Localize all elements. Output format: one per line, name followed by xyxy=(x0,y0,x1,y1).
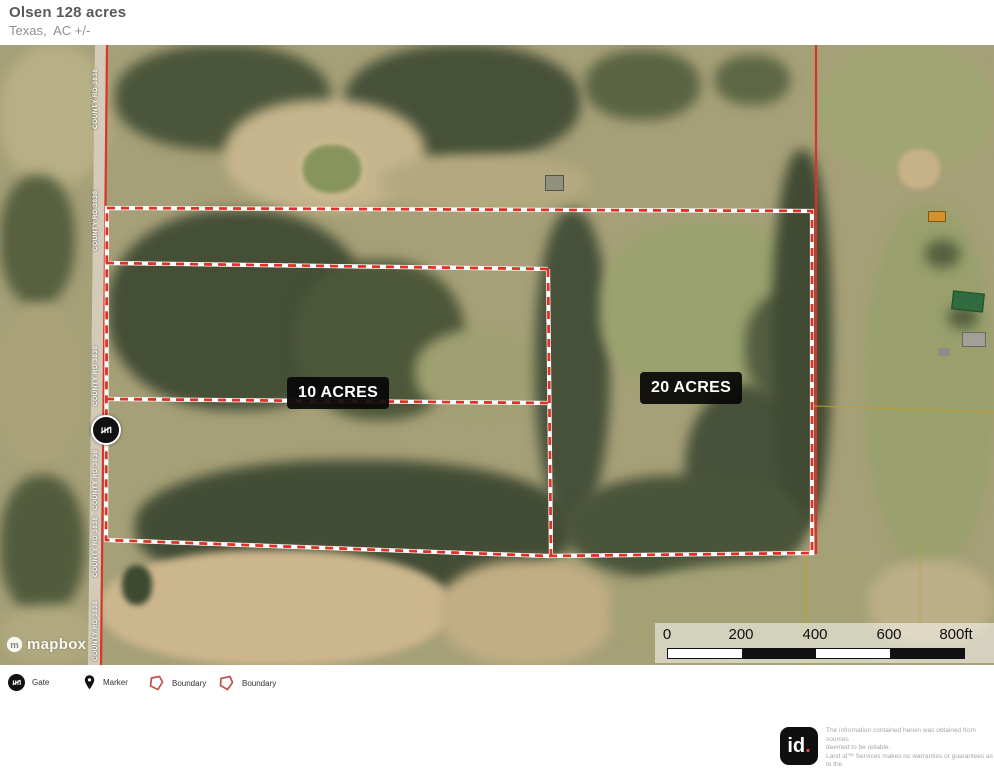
gate-icon xyxy=(99,423,113,437)
legend-label: Boundary xyxy=(242,679,276,688)
page-subtitle: Texas, AC +/- xyxy=(9,23,126,38)
road-label: COUNTY RD 3838 xyxy=(92,592,106,665)
gate-marker[interactable] xyxy=(91,415,121,445)
gate-icon xyxy=(8,674,25,691)
map-canvas[interactable]: COUNTY RD 3838 COUNTY RD 3838 COUNTY RD … xyxy=(0,45,994,665)
disclaimer: id. The information contained herein was… xyxy=(780,727,994,768)
road-label: COUNTY RD 3838 xyxy=(92,53,106,145)
scale-tick: 800ft xyxy=(939,626,972,643)
svg-text:m: m xyxy=(10,640,19,651)
legend-item-marker: Marker xyxy=(83,674,128,691)
boundary-icon xyxy=(147,674,165,692)
legend-item-boundary: Boundary xyxy=(147,674,206,692)
road-label: COUNTY RD 3838 xyxy=(92,330,106,422)
disclaimer-line: The information contained herein was obt… xyxy=(826,727,994,744)
scale-tick: 200 xyxy=(728,626,753,643)
road-label: COUNTY RD 3838 xyxy=(92,175,106,267)
legend-label: Boundary xyxy=(172,679,206,688)
mapbox-wordmark: mapbox xyxy=(27,636,86,653)
page: Olsen 128 acres Texas, AC +/- xyxy=(0,0,994,768)
boundary-overlay xyxy=(0,45,994,665)
legend-label: Marker xyxy=(103,678,128,687)
marker-icon xyxy=(83,674,96,691)
scale-bar: 0 200 400 600 800ft xyxy=(655,623,994,663)
land-id-logo-text: id xyxy=(787,735,805,758)
legend-item-boundary: Boundary xyxy=(217,674,276,692)
header: Olsen 128 acres Texas, AC +/- xyxy=(9,4,126,38)
road-label: COUNTY RD 3838 xyxy=(92,507,106,587)
legend-label: Gate xyxy=(32,678,49,687)
scale-bar-segments xyxy=(667,648,965,659)
land-id-logo: id. xyxy=(780,727,818,765)
disclaimer-line: Land id™ Services makes no warranties or… xyxy=(826,753,994,768)
disclaimer-line: deemed to be reliable. xyxy=(826,744,994,753)
mapbox-logo[interactable]: m mapbox xyxy=(6,636,86,653)
map-legend: Gate Marker Boundary Boundary xyxy=(0,665,994,710)
scale-tick: 400 xyxy=(802,626,827,643)
scale-tick: 600 xyxy=(876,626,901,643)
scale-tick: 0 xyxy=(663,626,671,643)
page-title: Olsen 128 acres xyxy=(9,4,126,21)
disclaimer-text: The information contained herein was obt… xyxy=(826,727,994,768)
parcel-label-10-acres: 10 ACRES xyxy=(287,377,389,409)
legend-item-gate: Gate xyxy=(8,674,49,691)
land-id-logo-dot: . xyxy=(805,735,811,758)
mapbox-icon: m xyxy=(6,636,23,653)
parcel-label-20-acres: 20 ACRES xyxy=(640,372,742,404)
boundary-icon xyxy=(217,674,235,692)
